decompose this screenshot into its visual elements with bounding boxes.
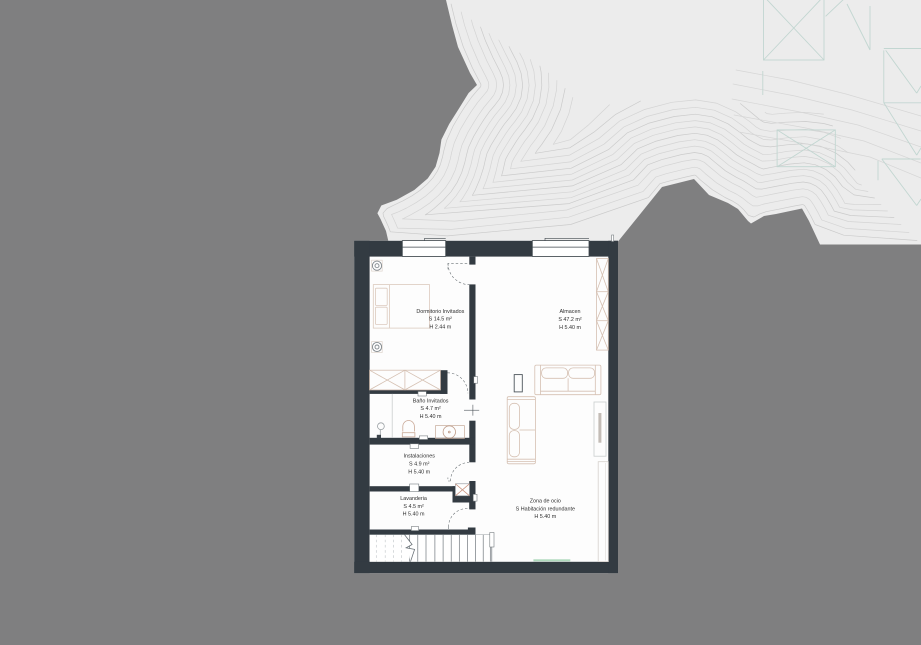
svg-text:H 5.40 m: H 5.40 m <box>420 414 442 420</box>
svg-text:Zona de ocio: Zona de ocio <box>530 499 561 505</box>
svg-text:H 2.44 m: H 2.44 m <box>429 324 451 330</box>
svg-text:Almacen: Almacen <box>560 309 581 315</box>
svg-text:Dormitorio Invitados: Dormitorio Invitados <box>416 309 464 315</box>
svg-text:H 5.40 m: H 5.40 m <box>534 514 556 520</box>
svg-text:Lavanderia: Lavanderia <box>400 496 427 502</box>
svg-text:Baño Invitados: Baño Invitados <box>413 398 449 404</box>
svg-text:H 5.40 m: H 5.40 m <box>403 512 425 518</box>
svg-text:S 4.9 m²: S 4.9 m² <box>409 462 430 468</box>
svg-text:Instalaciones: Instalaciones <box>403 454 435 460</box>
svg-text:H 5.40 m: H 5.40 m <box>408 469 430 475</box>
svg-text:H 5.40 m: H 5.40 m <box>559 325 581 331</box>
svg-text:S 4.5 m²: S 4.5 m² <box>403 504 424 510</box>
svg-text:S 4.7 m²: S 4.7 m² <box>420 406 441 412</box>
svg-text:S 14.5 m²: S 14.5 m² <box>429 317 453 323</box>
svg-text:S Habitación redundante: S Habitación redundante <box>516 506 575 512</box>
svg-text:S 47.2 m²: S 47.2 m² <box>558 317 582 323</box>
